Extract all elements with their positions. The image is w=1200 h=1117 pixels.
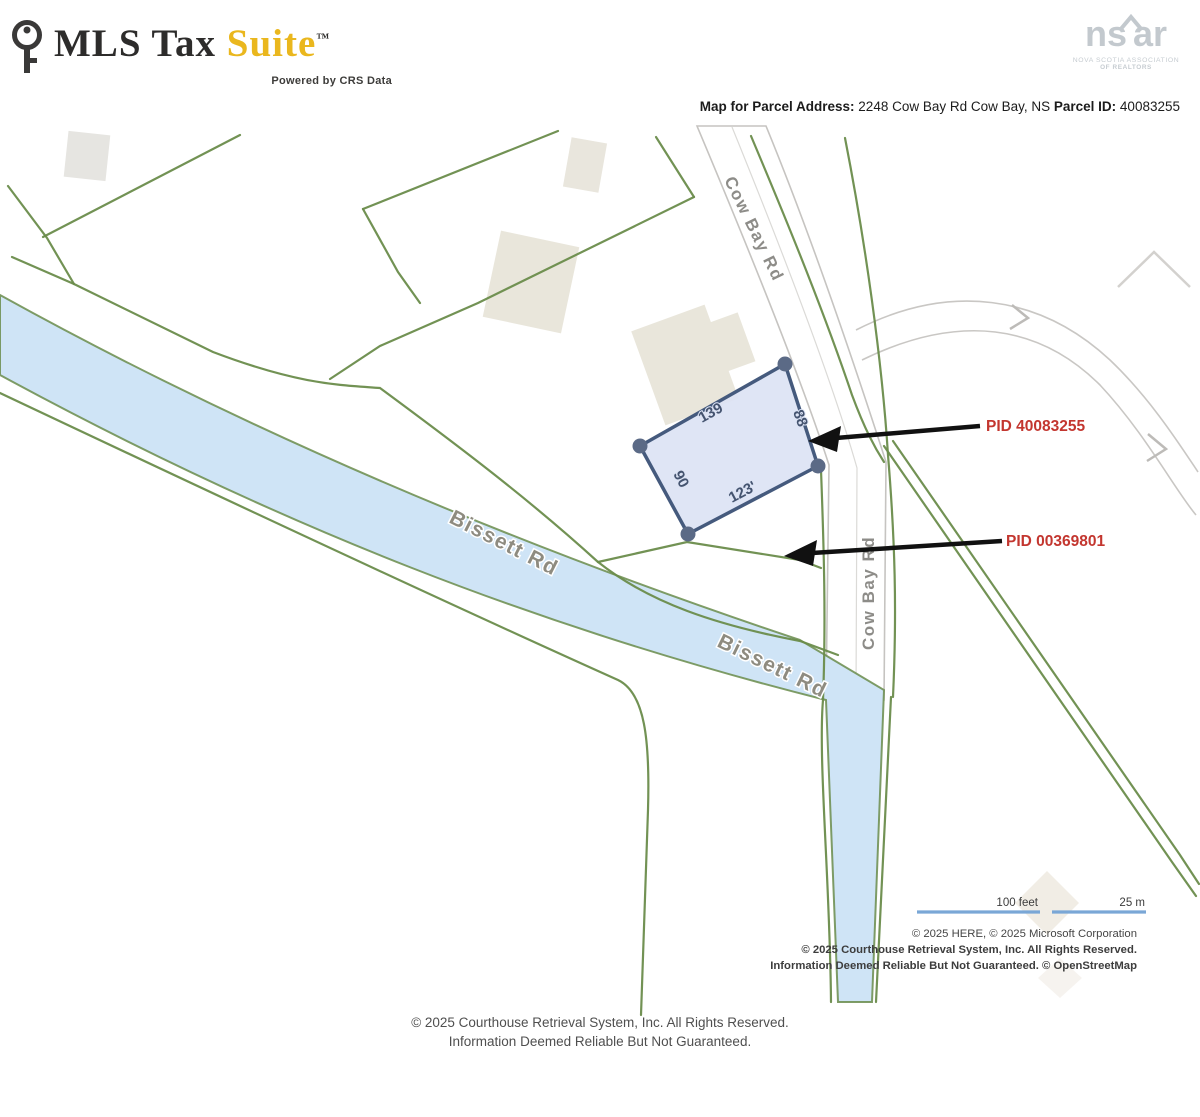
nsar-caption-1: NOVA SCOTIA ASSOCIATION (1066, 57, 1186, 64)
parcel-id-label: Parcel ID: (1054, 99, 1116, 114)
mls-tax-suite-logo: MLS Tax Suite™ Powered by CRS Data (10, 16, 410, 87)
map-attribution: © 2025 HERE, © 2025 Microsoft Corporatio… (770, 928, 1137, 972)
footer-line-1: © 2025 Courthouse Retrieval System, Inc.… (0, 1014, 1200, 1033)
address-label: Map for Parcel Address: (700, 99, 855, 114)
brand-tagline: Powered by CRS Data (10, 75, 392, 87)
scale-meters-label: 25 m (1119, 897, 1145, 909)
attribution-line-1: © 2025 HERE, © 2025 Microsoft Corporatio… (912, 928, 1137, 940)
page-footer: © 2025 Courthouse Retrieval System, Inc.… (0, 1014, 1200, 1051)
attribution-line-3: Information Deemed Reliable But Not Guar… (770, 960, 1137, 972)
map-title-line: Map for Parcel Address: 2248 Cow Bay Rd … (700, 99, 1180, 114)
brand-mls-tax: MLS Tax (54, 22, 216, 65)
parcel-vertex (681, 527, 696, 542)
brand-suite: Suite (216, 22, 316, 65)
nsar-wordmark: ns ar (1071, 12, 1181, 54)
parcel-id-value: 40083255 (1116, 99, 1180, 114)
pid-label-subject: PID 40083255 (986, 418, 1085, 435)
parcel-map[interactable]: 139 88 123' 90 Cow Bay Rd Cow Bay Rd Bis… (0, 0, 1200, 1117)
parcel-vertex (811, 459, 826, 474)
nsar-ar: ar (1133, 13, 1167, 54)
footer-line-2: Information Deemed Reliable But Not Guar… (0, 1033, 1200, 1052)
attribution-line-2: © 2025 Courthouse Retrieval System, Inc.… (801, 944, 1137, 956)
key-icon (10, 18, 44, 78)
address-value: 2248 Cow Bay Rd Cow Bay, NS (855, 99, 1054, 114)
parcel-vertex (633, 439, 648, 454)
side-road-curves (856, 252, 1198, 515)
pid-label-neighbor: PID 00369801 (1006, 533, 1105, 550)
brand-title: MLS Tax Suite™ (54, 16, 330, 66)
mls-tax-suite-page: 139 88 123' 90 Cow Bay Rd Cow Bay Rd Bis… (0, 0, 1200, 1117)
scale-feet-label: 100 feet (996, 897, 1038, 909)
street-label-cow-bay-lower: Cow Bay Rd (859, 536, 878, 650)
parcel-vertex (778, 357, 793, 372)
nsar-ns: ns (1085, 13, 1127, 54)
nsar-caption-2: OF REALTORS (1066, 64, 1186, 71)
brand-trademark: ™ (316, 30, 330, 45)
nsar-logo: ns ar NOVA SCOTIA ASSOCIATION OF REALTOR… (1066, 12, 1186, 71)
